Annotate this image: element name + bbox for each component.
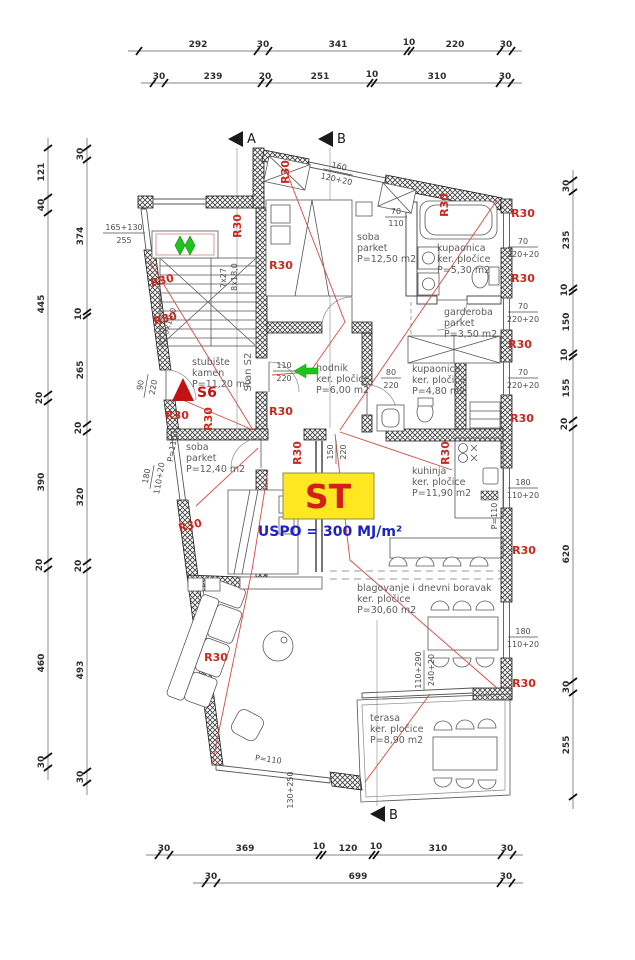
opening-dim: 110 [388, 219, 403, 228]
stair-run-label: 8x18,0 [230, 263, 239, 291]
dim-value: 20 [560, 418, 570, 431]
opening-dim: 150 [326, 444, 335, 459]
dim-value: 20 [74, 422, 84, 435]
dim-value: 251 [311, 72, 330, 82]
dim-value: 30 [500, 872, 513, 882]
fire-rating-label: R30 [269, 259, 293, 272]
section-label: B [389, 808, 398, 823]
fire-rating-label: R30 [165, 409, 189, 422]
dim-value: 255 [562, 736, 572, 755]
dim-value: 10 [313, 842, 326, 852]
room-name: soba [186, 442, 209, 453]
fire-rating-label: R30 [438, 193, 451, 217]
dim-value: 155 [562, 379, 572, 398]
dim-value: 30 [76, 148, 86, 161]
floor-plan-page: soba parket P=12,50 m2 kupaonica ker. pl… [0, 0, 635, 960]
opening-dim: 220 [339, 444, 348, 459]
dim-value: 20 [259, 72, 272, 82]
opening-dim: 70 [391, 207, 401, 216]
dim-value: 20 [35, 559, 45, 572]
room-name: terasa [370, 713, 400, 724]
dim-value: 460 [37, 654, 47, 673]
fire-rating-label: R30 [291, 441, 304, 465]
room-name: hodnik [316, 363, 349, 374]
dim-value: 310 [429, 844, 448, 854]
dim-value: 390 [37, 473, 47, 492]
bathtub [420, 201, 497, 239]
fire-rating-label: R30 [204, 651, 228, 664]
room-area: P=4,80 m2 [412, 386, 465, 397]
dim-value: 445 [37, 295, 47, 314]
dim-value: 20 [74, 560, 84, 573]
opening-dim: 220 [276, 374, 291, 383]
room-area: P=11,90 m2 [412, 488, 471, 499]
dim-value: 30 [153, 72, 166, 82]
fire-rating-label: R30 [508, 338, 532, 351]
dim-value: 341 [329, 40, 348, 50]
dim-value: 220 [446, 40, 465, 50]
dim-value: 239 [204, 72, 223, 82]
sideboard [188, 577, 322, 591]
closet-garderoba [408, 336, 500, 363]
opening-dim: 165+130 [105, 223, 142, 232]
room-label-kupaonica1: kupaonica ker. pločice P=5,30 m2 [437, 243, 491, 276]
room-floor: parket [357, 243, 388, 254]
dim-value: 10 [370, 842, 383, 852]
room-floor: parket [444, 318, 475, 329]
dim-value: 10 [560, 349, 570, 362]
unit-marker-label: ST [305, 477, 352, 516]
room-name: kuhinja [412, 466, 446, 477]
opening-dim: 110+20 [507, 640, 539, 649]
dim-value: 30 [562, 681, 572, 694]
fire-rating-label: R30 [202, 407, 215, 431]
dim-value: 30 [205, 872, 218, 882]
dim-value: 374 [76, 227, 86, 246]
unit-marker: ST [283, 473, 374, 519]
room-area: P=6,00 m2 [316, 385, 369, 396]
dim-value: 30 [501, 844, 514, 854]
room-floor: ker. pločice [370, 724, 424, 735]
opening-dim: 180 [515, 478, 530, 487]
fire-rating-label: R30 [439, 441, 452, 465]
fire-rating-label: R30 [511, 207, 535, 220]
dim-value: 30 [76, 771, 86, 784]
dim-value: 10 [74, 308, 84, 321]
dim-value: 150 [562, 313, 572, 332]
shower [377, 405, 404, 431]
room-name: blagovanje i dnevni boravak [357, 583, 492, 594]
opening-dim: 255 [116, 236, 131, 245]
dim-value: 10 [366, 70, 379, 80]
room-name: soba [357, 232, 380, 243]
dim-value: 30 [257, 40, 270, 50]
dim-value: 265 [76, 361, 86, 380]
opening-dim: 110 [276, 361, 291, 370]
fire-rating-label: R30 [512, 544, 536, 557]
room-name: kupaonica [412, 364, 461, 375]
dim-value: 40 [37, 199, 47, 212]
opening-dim: 220 [383, 381, 398, 390]
opening-dim: 180 [515, 627, 530, 636]
room-floor: kamen [192, 368, 224, 379]
dim-value: 30 [562, 180, 572, 193]
room-area: P=30,60 m2 [357, 605, 416, 616]
room-name: stubište [192, 357, 230, 368]
room-floor: ker. pločice [316, 374, 370, 385]
opening-dim: 70 [518, 302, 528, 311]
unit-name-label: Stan S2 [243, 353, 254, 392]
dim-value: 121 [37, 163, 47, 182]
opening-dim: 220+20 [507, 250, 539, 259]
room-floor: parket [186, 453, 217, 464]
parapet-label: P=110 [490, 503, 499, 530]
elevator [152, 231, 218, 258]
room-area: P=3,50 m2 [444, 329, 497, 340]
fire-rating-label: R30 [511, 272, 535, 285]
dim-value: 235 [562, 231, 572, 250]
dim-value: 20 [35, 392, 45, 405]
stair-run-label: 7x27 [219, 268, 228, 288]
room-name: garderoba [444, 307, 493, 318]
fire-rating-label: R30 [269, 405, 293, 418]
coffee-table [263, 631, 293, 661]
opening-dim: 220+20 [507, 315, 539, 324]
opening-dim: 90 [135, 379, 146, 391]
dim-value: 310 [428, 72, 447, 82]
energy-label: USPO = 300 MJ/m² [258, 524, 402, 540]
fire-rating-label: R30 [510, 412, 534, 425]
dim-value: 30 [158, 844, 171, 854]
room-floor: ker. pločice [357, 594, 411, 605]
opening-dim: 220+20 [507, 381, 539, 390]
dim-value: 493 [76, 661, 86, 680]
fire-rating-label: R30 [512, 677, 536, 690]
dim-value: 369 [236, 844, 255, 854]
opening-dim: 110+290 [414, 651, 423, 688]
opening-dim: 110+20 [507, 491, 539, 500]
dim-value: 10 [560, 284, 570, 297]
opening-dim: 240+20 [427, 654, 436, 686]
fire-rating-label: R30 [231, 214, 244, 238]
room-floor: ker. pločice [412, 375, 466, 386]
fire-rating-label: R30 [279, 160, 292, 184]
room-floor: ker. pločice [412, 477, 466, 488]
dim-value: 620 [562, 545, 572, 564]
dim-value: 320 [76, 488, 86, 507]
room-area: P=8,90 m2 [370, 735, 423, 746]
dim-value: 30 [499, 72, 512, 82]
dim-value: 30 [500, 40, 513, 50]
room-area: P=12,40 m2 [186, 464, 245, 475]
opening-dim: 80 [386, 368, 396, 377]
exit-label: S6 [197, 385, 217, 401]
section-label: A [247, 132, 256, 147]
dim-value: 10 [403, 38, 416, 48]
dim-value: 699 [349, 872, 368, 882]
room-floor: ker. pločice [437, 254, 491, 265]
room-area: P=5,30 m2 [437, 265, 490, 276]
dim-value: 30 [37, 756, 47, 769]
dim-value: 120 [339, 844, 358, 854]
opening-dim: 130+250 [286, 771, 295, 808]
room-label-kupaonica2: kupaonica ker. pločice P=4,80 m2 [412, 364, 466, 397]
room-area: P=12,50 m2 [357, 254, 416, 265]
dim-value: 292 [189, 40, 208, 50]
opening-dim: 70 [518, 368, 528, 377]
opening-dim: 70 [518, 237, 528, 246]
room-name: kupaonica [437, 243, 486, 254]
floor-plan: soba parket P=12,50 m2 kupaonica ker. pl… [0, 0, 635, 960]
section-label: B [337, 132, 346, 147]
